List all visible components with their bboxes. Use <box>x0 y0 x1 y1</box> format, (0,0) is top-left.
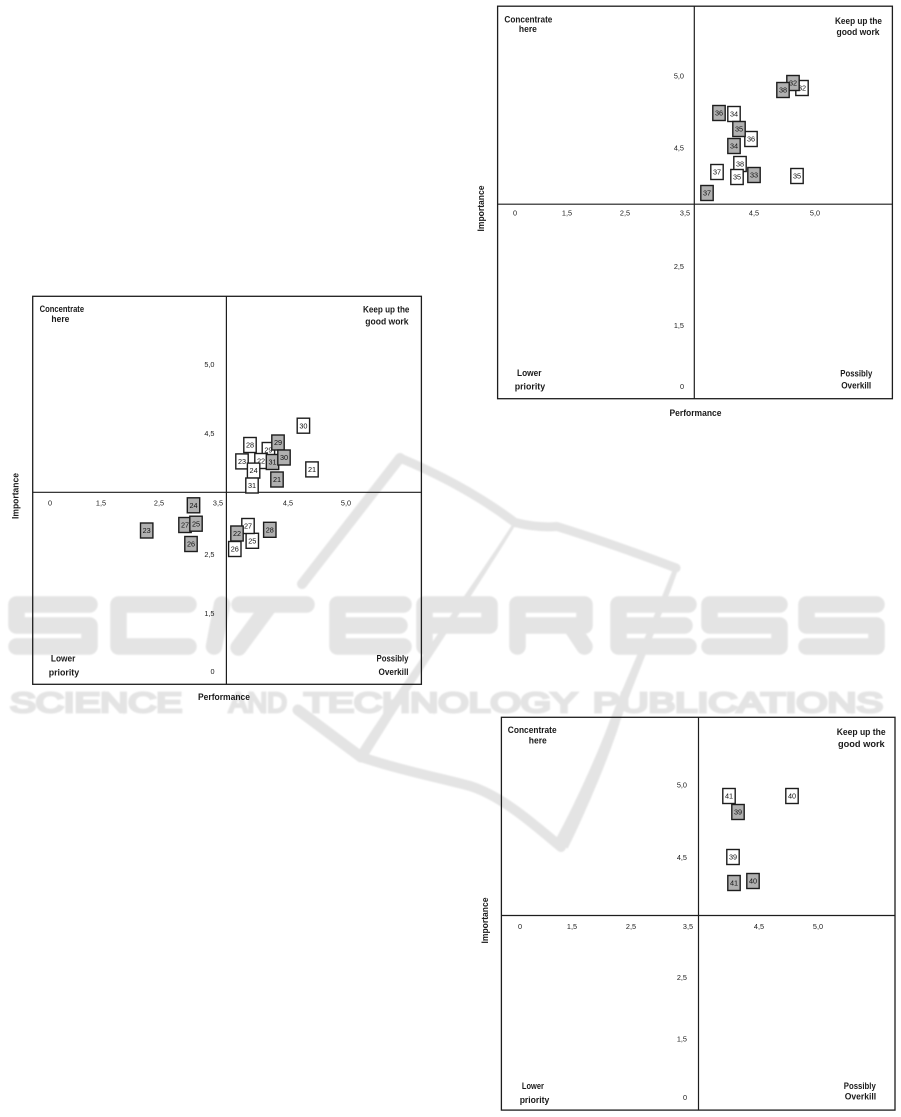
svg-text:31: 31 <box>248 481 256 490</box>
svg-text:0: 0 <box>518 922 522 931</box>
svg-text:37: 37 <box>713 168 721 177</box>
svg-text:Importance: Importance <box>11 473 21 519</box>
svg-text:Concentrate: Concentrate <box>508 725 557 735</box>
svg-text:Importance: Importance <box>476 186 486 232</box>
svg-text:Concentrate: Concentrate <box>40 304 85 314</box>
svg-text:good work: good work <box>365 317 409 327</box>
svg-text:2,5: 2,5 <box>674 262 684 271</box>
svg-text:22: 22 <box>233 529 241 538</box>
svg-text:26: 26 <box>187 540 195 549</box>
svg-text:here: here <box>519 24 537 34</box>
svg-text:1,5: 1,5 <box>567 922 577 931</box>
svg-text:good work: good work <box>837 27 881 37</box>
svg-text:0: 0 <box>680 382 684 391</box>
svg-text:SCIENCE: SCIENCE <box>10 687 182 718</box>
svg-text:here: here <box>51 314 69 324</box>
svg-text:25: 25 <box>192 519 200 528</box>
svg-text:35: 35 <box>733 173 741 182</box>
svg-text:24: 24 <box>189 501 197 510</box>
svg-text:35: 35 <box>735 125 743 134</box>
svg-text:Keep up the: Keep up the <box>363 305 409 315</box>
svg-text:32: 32 <box>789 79 797 88</box>
svg-text:2,5: 2,5 <box>204 550 214 559</box>
svg-text:4,5: 4,5 <box>677 853 687 862</box>
svg-text:38: 38 <box>779 86 787 95</box>
svg-text:2,5: 2,5 <box>677 973 687 982</box>
svg-text:3,5: 3,5 <box>680 209 690 218</box>
svg-text:23: 23 <box>238 457 246 466</box>
svg-text:5,0: 5,0 <box>674 72 684 81</box>
svg-text:3,5: 3,5 <box>683 922 693 931</box>
svg-text:2,5: 2,5 <box>626 922 636 931</box>
svg-text:28: 28 <box>246 441 254 450</box>
svg-text:1,5: 1,5 <box>674 321 684 330</box>
svg-text:PUBLICATIONS: PUBLICATIONS <box>593 687 883 718</box>
svg-text:25: 25 <box>248 536 256 545</box>
svg-text:2,5: 2,5 <box>620 209 630 218</box>
svg-text:40: 40 <box>788 792 796 801</box>
svg-text:Overkill: Overkill <box>379 667 409 677</box>
svg-text:26: 26 <box>231 545 239 554</box>
svg-text:TECHNOLOGY: TECHNOLOGY <box>304 687 577 718</box>
svg-text:29: 29 <box>274 438 282 447</box>
svg-text:2,5: 2,5 <box>154 499 164 508</box>
svg-text:27: 27 <box>181 521 189 530</box>
svg-text:5,0: 5,0 <box>813 922 823 931</box>
svg-text:38: 38 <box>736 160 744 169</box>
svg-text:41: 41 <box>730 879 738 888</box>
svg-text:21: 21 <box>308 465 316 474</box>
svg-text:24: 24 <box>250 466 258 475</box>
svg-text:4,5: 4,5 <box>283 499 293 508</box>
svg-text:0: 0 <box>48 499 52 508</box>
svg-text:36: 36 <box>715 109 723 118</box>
svg-text:Possibly: Possibly <box>377 654 410 664</box>
svg-text:1,5: 1,5 <box>562 209 572 218</box>
svg-text:5,0: 5,0 <box>810 209 820 218</box>
svg-text:Concentrate: Concentrate <box>504 15 552 25</box>
svg-text:priority: priority <box>515 381 546 391</box>
svg-text:21: 21 <box>273 475 281 484</box>
svg-text:36: 36 <box>747 135 755 144</box>
svg-text:Overkill: Overkill <box>841 380 871 390</box>
svg-text:priority: priority <box>49 667 80 677</box>
svg-text:0: 0 <box>683 1093 687 1102</box>
svg-text:here: here <box>529 736 547 746</box>
svg-text:37: 37 <box>703 189 711 198</box>
svg-text:4,5: 4,5 <box>749 209 759 218</box>
svg-text:Lower: Lower <box>51 654 76 664</box>
svg-text:1,5: 1,5 <box>96 499 106 508</box>
svg-text:39: 39 <box>734 808 742 817</box>
svg-text:34: 34 <box>730 142 738 151</box>
svg-text:40: 40 <box>749 877 757 886</box>
svg-text:31: 31 <box>268 458 276 467</box>
svg-text:Overkill: Overkill <box>845 1092 877 1102</box>
svg-text:28: 28 <box>266 525 274 534</box>
svg-text:3,5: 3,5 <box>213 499 223 508</box>
svg-text:4,5: 4,5 <box>204 429 214 438</box>
svg-text:Performance: Performance <box>198 692 250 702</box>
svg-text:41: 41 <box>725 792 733 801</box>
svg-text:Keep up the: Keep up the <box>835 16 882 26</box>
svg-text:5,0: 5,0 <box>677 781 687 790</box>
svg-text:Lower: Lower <box>522 1081 544 1091</box>
svg-text:5,0: 5,0 <box>204 360 214 369</box>
svg-text:0: 0 <box>210 667 214 676</box>
svg-text:30: 30 <box>280 453 288 462</box>
svg-text:1,5: 1,5 <box>204 609 214 618</box>
svg-text:Possibly: Possibly <box>844 1081 877 1091</box>
svg-text:27: 27 <box>244 522 252 531</box>
svg-text:39: 39 <box>729 853 737 862</box>
svg-text:33: 33 <box>750 171 758 180</box>
svg-text:4,5: 4,5 <box>674 144 684 153</box>
svg-text:0: 0 <box>513 209 517 218</box>
svg-text:1,5: 1,5 <box>677 1035 687 1044</box>
svg-text:Possibly: Possibly <box>840 368 873 378</box>
svg-text:good work: good work <box>838 739 886 749</box>
svg-text:30: 30 <box>299 421 307 430</box>
svg-text:Lower: Lower <box>517 368 542 378</box>
svg-text:Performance: Performance <box>670 408 722 418</box>
svg-text:Importance: Importance <box>480 898 490 944</box>
svg-text:priority: priority <box>520 1095 550 1105</box>
svg-text:34: 34 <box>730 110 738 119</box>
svg-text:Keep up the: Keep up the <box>837 727 886 737</box>
svg-text:5,0: 5,0 <box>341 499 351 508</box>
svg-text:23: 23 <box>143 526 151 535</box>
svg-text:35: 35 <box>793 172 801 181</box>
svg-text:4,5: 4,5 <box>754 922 764 931</box>
